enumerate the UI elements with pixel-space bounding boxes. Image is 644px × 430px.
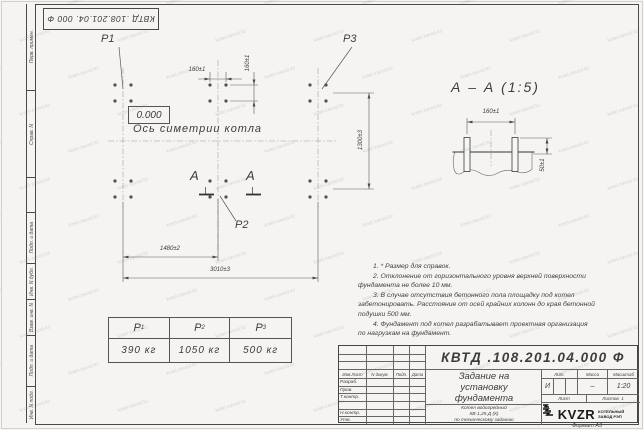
sig-col-izm: Изм.Лист bbox=[339, 369, 366, 378]
logo-text: KVZR bbox=[558, 407, 595, 422]
sidebar-box-blank bbox=[27, 178, 36, 213]
note-line: по нагрузкам на фундамент. bbox=[358, 329, 642, 339]
dim-160-horizontal: 160±1 bbox=[182, 67, 212, 73]
sidebar-box: Подп. и дата bbox=[27, 336, 36, 387]
drawing-sheet: Перв. примен. Справ. N Подп. и дата Инв.… bbox=[0, 0, 644, 430]
note-line: фундамента не более 10 мм. bbox=[358, 281, 642, 291]
dim-1480: 1480±2 bbox=[150, 246, 190, 252]
scale-header: Масштаб bbox=[607, 369, 639, 378]
section-letter-left: А bbox=[190, 168, 199, 183]
notes-block: 1. * Размер для справок.2. Отклонение от… bbox=[358, 262, 642, 339]
doc-title: Задание на установку фундамента bbox=[425, 369, 542, 405]
sidebar-label: Подп. и дата bbox=[29, 222, 35, 253]
elevation-mark: 0.000 bbox=[128, 106, 170, 124]
sig-row-utv: Утв. bbox=[339, 416, 366, 424]
sheets-count: Листов 1 bbox=[586, 394, 639, 402]
lit-header: Лит. bbox=[541, 369, 577, 378]
sidebar-label: Инв. N дубл. bbox=[29, 267, 35, 296]
sidebar-box: Инв. N подл. bbox=[27, 387, 36, 423]
company-name: КОТЕЛЬНЫЙ ЗАВОД РЭП bbox=[598, 409, 624, 419]
sidebar-label: Справ. N bbox=[29, 124, 35, 145]
sig-col-podp: Подп. bbox=[393, 369, 409, 378]
dim-3010: 3010±3 bbox=[200, 267, 240, 273]
note-line: 2. Отклонение от горизонтального уровня … bbox=[358, 272, 642, 282]
title-block: КВТД .108.201.04.000 Ф Изм.Лист N докум.… bbox=[338, 345, 638, 423]
sidebar-box: Перв. примен. bbox=[27, 4, 36, 91]
sig-col-doc: N докум. bbox=[366, 369, 393, 378]
load-table-value: 390 кг bbox=[109, 339, 170, 362]
dim-1300: 1300±3 bbox=[358, 123, 364, 157]
sidebar-box: Справ. N bbox=[27, 91, 36, 178]
note-line: забетонировать. Расстояние от осей крайн… bbox=[358, 300, 642, 310]
note-line: 1. * Размер для справок. bbox=[358, 262, 642, 272]
sidebar-label: Взам. инв. N bbox=[29, 303, 35, 332]
load-table-value: 500 кг bbox=[230, 339, 291, 362]
doc-subtitle: Котел водогрейный КВ-1,25 Д (К) по техни… bbox=[425, 404, 542, 425]
titleblock-doc-number: КВТД .108.201.04.000 Ф bbox=[425, 346, 640, 369]
sidebar-column: Перв. примен. Справ. N Подп. и дата Инв.… bbox=[26, 4, 36, 423]
load-table-header: P2 bbox=[170, 318, 231, 339]
load-table-value: 1050 кг bbox=[170, 339, 231, 362]
load-point-p1-label: P1 bbox=[101, 33, 114, 45]
lit-value: И bbox=[541, 378, 553, 394]
sidebar-box: Взам. инв. N bbox=[27, 300, 36, 336]
scale-value: 1:20 bbox=[607, 378, 639, 394]
load-table-header: P3 bbox=[230, 318, 291, 339]
note-line: подушки 500 мм. bbox=[358, 310, 642, 320]
top-stamp-docnumber: КВТД .108.201.04. 000 Ф bbox=[47, 14, 155, 24]
sig-row-prov: Пров. bbox=[339, 386, 366, 393]
section-letter-right: А bbox=[246, 168, 255, 183]
load-table: P1 P2 P3 390 кг 1050 кг 500 кг bbox=[108, 317, 292, 363]
dim-50-section: 50±1 bbox=[540, 149, 546, 181]
sidebar-box: Подп. и дата bbox=[27, 213, 36, 264]
note-line: 3. В случае отсутствия бетонного пола пл… bbox=[358, 291, 642, 301]
section-view-title: А – А (1:5) bbox=[428, 79, 563, 95]
sig-row-empty bbox=[339, 401, 366, 409]
company-logo-area: KVZR КОТЕЛЬНЫЙ ЗАВОД РЭП bbox=[541, 402, 640, 425]
boiler-axis-label: Ось симетрии котла bbox=[133, 123, 262, 135]
format-label: Формат А3 bbox=[552, 423, 622, 429]
load-point-p3-label: P3 bbox=[343, 33, 356, 45]
sidebar-label: Инв. N подл. bbox=[29, 390, 35, 419]
sidebar-box: Инв. N дубл. bbox=[27, 264, 36, 300]
dim-160-section: 160±1 bbox=[474, 109, 508, 115]
sig-row-tkontr: Т.контр. bbox=[339, 393, 366, 401]
top-stamp: КВТД .108.201.04. 000 Ф bbox=[43, 8, 159, 30]
mass-value: – bbox=[577, 378, 607, 394]
note-line: 4. Фундамент под котел разрабатывает про… bbox=[358, 320, 642, 330]
sheet-label: Лист bbox=[541, 394, 586, 402]
dim-160-vertical: 160±1 bbox=[245, 48, 251, 78]
kvzr-logo-icon bbox=[542, 403, 556, 416]
sig-row-razrab: Разраб. bbox=[339, 378, 366, 386]
sidebar-label: Подп. и дата bbox=[29, 345, 35, 376]
load-table-header: P1 bbox=[109, 318, 170, 339]
sidebar-label: Перв. примен. bbox=[29, 30, 35, 63]
sig-col-data: Дата bbox=[409, 369, 425, 378]
load-point-p2-label: P2 bbox=[235, 219, 248, 231]
mass-header: Масса bbox=[577, 369, 607, 378]
sig-row-nkontr: Н.контр. bbox=[339, 409, 366, 416]
